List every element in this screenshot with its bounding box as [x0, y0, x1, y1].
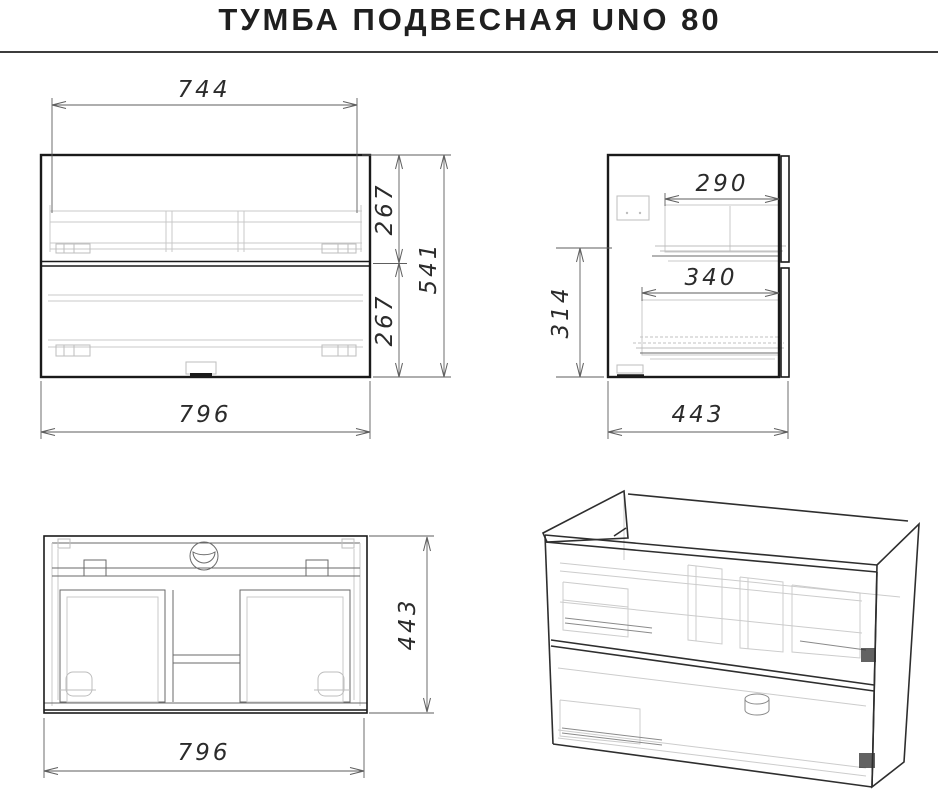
front-view-drawing: 744 267 267 541: [41, 77, 451, 439]
svg-text:796: 796: [179, 402, 232, 428]
svg-text:443: 443: [672, 402, 725, 428]
side-view-drawing: 290 340 314 443: [548, 155, 789, 439]
drain-cylinder: [745, 694, 769, 715]
front-view-dimensions: 744 267 267 541: [41, 77, 451, 439]
dim-side-lower-drawer-depth: 340: [642, 265, 779, 301]
side-view-dimensions: 290 340 314 443: [548, 171, 788, 439]
dim-front-inner-width: 744: [52, 77, 357, 213]
drawing-page: ТУМБА ПОДВЕСНАЯ UNO 80: [0, 0, 940, 800]
top-view-drawing: 443 796: [44, 536, 434, 778]
dim-top-overall-depth: 443: [369, 536, 434, 713]
dim-side-lower-section-height: 314: [548, 248, 612, 377]
dim-front-overall-width: 796: [41, 381, 370, 439]
svg-text:267: 267: [372, 294, 398, 347]
svg-text:443: 443: [395, 598, 421, 651]
svg-text:340: 340: [685, 265, 738, 291]
dim-side-upper-drawer-depth: 290: [665, 171, 779, 206]
dim-front-total-height: 541: [416, 155, 444, 377]
svg-text:314: 314: [548, 286, 574, 339]
dim-top-overall-width: 796: [44, 718, 364, 778]
svg-text:541: 541: [416, 242, 442, 295]
technical-drawing: 744 267 267 541: [0, 0, 940, 800]
dim-side-overall-depth: 443: [608, 381, 788, 439]
svg-text:744: 744: [178, 77, 231, 103]
svg-text:267: 267: [372, 183, 398, 236]
svg-text:290: 290: [696, 171, 749, 197]
isometric-view-drawing: [543, 491, 919, 787]
top-view-dimensions: 443 796: [44, 536, 434, 778]
svg-text:796: 796: [178, 740, 231, 766]
drain-hole: [190, 542, 218, 570]
